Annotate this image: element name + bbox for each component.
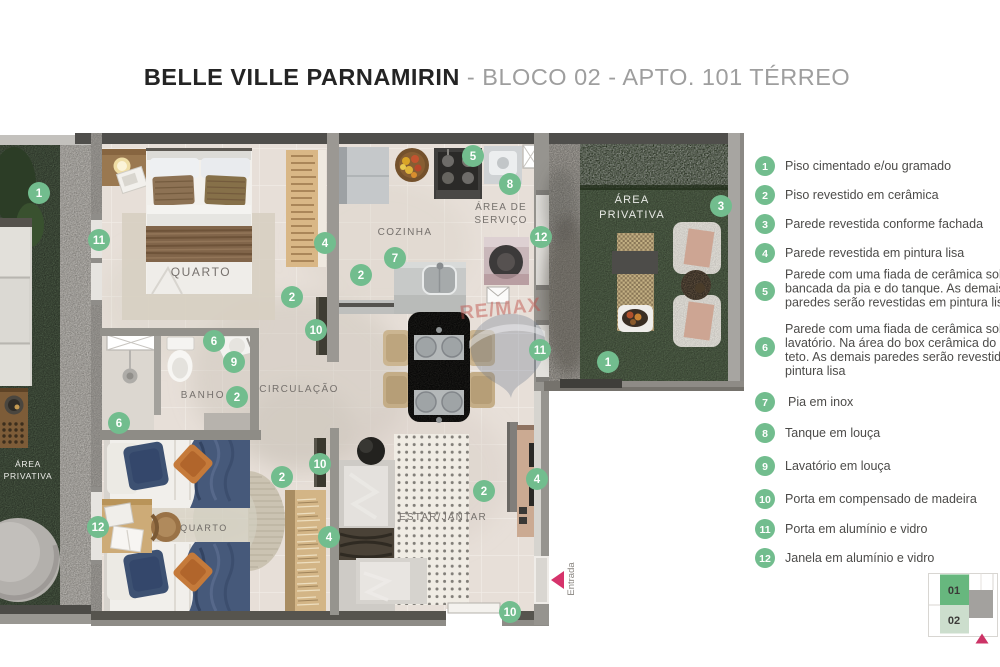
svg-text:6: 6 [762, 342, 768, 354]
svg-text:12: 12 [535, 232, 548, 244]
svg-text:1: 1 [605, 357, 612, 369]
svg-text:Porta em compensado de madeira: Porta em compensado de madeira [785, 492, 977, 506]
svg-text:10: 10 [504, 607, 517, 619]
svg-text:BELLE VILLE PARNAMIRIN - BLOCO: BELLE VILLE PARNAMIRIN - BLOCO 02 - APTO… [144, 64, 850, 90]
svg-text:Piso cimentado e/ou gramado: Piso cimentado e/ou gramado [785, 159, 951, 173]
svg-text:7: 7 [762, 397, 768, 409]
svg-text:7: 7 [392, 253, 398, 265]
svg-text:8: 8 [507, 179, 514, 191]
svg-text:11: 11 [93, 235, 106, 247]
svg-text:QUARTO: QUARTO [171, 265, 232, 279]
svg-text:2: 2 [762, 190, 768, 202]
svg-text:6: 6 [211, 336, 217, 348]
svg-text:4: 4 [322, 238, 329, 250]
svg-text:bancada da pia e do tanque. A: bancada da pia e do tanque. As demais [785, 282, 1000, 296]
svg-text:2: 2 [481, 486, 487, 498]
svg-text:2: 2 [279, 472, 285, 484]
svg-text:11: 11 [759, 524, 770, 536]
svg-text:Janela em alumínio e vidro: Janela em alumínio e vidro [785, 551, 934, 565]
svg-text:9: 9 [762, 461, 768, 473]
svg-text:10: 10 [314, 459, 327, 471]
svg-text:5: 5 [470, 151, 477, 163]
svg-text:8: 8 [762, 428, 768, 440]
svg-text:4: 4 [534, 474, 541, 486]
svg-text:3: 3 [762, 219, 768, 231]
svg-text:Tanque em louça: Tanque em louça [785, 426, 880, 440]
svg-text:4: 4 [762, 248, 768, 260]
svg-text:6: 6 [116, 418, 122, 430]
svg-text:QUARTO: QUARTO [180, 523, 228, 533]
svg-text:Entrada: Entrada [566, 562, 577, 596]
svg-text:2: 2 [234, 392, 240, 404]
svg-text:teto. As demais paredes serão: teto. As demais paredes serão revestidas… [785, 350, 1000, 364]
svg-text:BANHO: BANHO [181, 390, 226, 401]
svg-text:02: 02 [948, 615, 960, 627]
svg-text:2: 2 [358, 270, 364, 282]
svg-text:12: 12 [759, 553, 771, 565]
svg-text:9: 9 [231, 357, 237, 369]
svg-text:SERVIÇO: SERVIÇO [474, 215, 527, 226]
svg-text:ÁREA: ÁREA [615, 193, 650, 206]
svg-text:Porta em alumínio e vidro: Porta em alumínio e vidro [785, 522, 927, 536]
svg-text:3: 3 [718, 201, 724, 213]
svg-text:ESTAR/JANTAR: ESTAR/JANTAR [399, 512, 487, 523]
svg-text:Parede com uma fiada de cerâmi: Parede com uma fiada de cerâmica sobre o [785, 322, 1000, 336]
svg-text:1: 1 [762, 161, 768, 173]
svg-text:Pia em inox: Pia em inox [788, 395, 854, 409]
svg-text:paredes serão revestidas em pi: paredes serão revestidas em pintura lisa [785, 296, 1000, 310]
svg-text:10: 10 [759, 494, 771, 506]
svg-text:Parede revestida conforme fach: Parede revestida conforme fachada [785, 217, 983, 231]
svg-text:Parede com uma fiada de cerâmi: Parede com uma fiada de cerâmica sobre a [785, 268, 1000, 282]
svg-text:COZINHA: COZINHA [378, 227, 433, 238]
svg-text:Piso revestido em cerâmica: Piso revestido em cerâmica [785, 188, 939, 202]
svg-text:ÁREA: ÁREA [15, 459, 41, 469]
svg-text:Lavatório em louça: Lavatório em louça [785, 459, 891, 473]
svg-text:10: 10 [310, 325, 323, 337]
svg-text:12: 12 [92, 522, 105, 534]
svg-text:01: 01 [948, 585, 960, 597]
svg-text:1: 1 [36, 188, 43, 200]
svg-text:PRIVATIVA: PRIVATIVA [4, 471, 53, 481]
svg-text:Parede revestida em pintura li: Parede revestida em pintura lisa [785, 246, 964, 260]
svg-text:11: 11 [534, 345, 547, 357]
svg-text:2: 2 [289, 292, 295, 304]
svg-text:pintura lisa: pintura lisa [785, 364, 845, 378]
svg-text:4: 4 [326, 532, 333, 544]
svg-text:CIRCULAÇÃO: CIRCULAÇÃO [259, 382, 339, 395]
svg-text:ÁREA DE: ÁREA DE [475, 200, 527, 213]
svg-text:PRIVATIVA: PRIVATIVA [599, 209, 665, 221]
svg-text:5: 5 [762, 286, 768, 298]
svg-text:lavatório. Na área do box cerâ: lavatório. Na área do box cerâmica do pi… [785, 336, 1000, 350]
